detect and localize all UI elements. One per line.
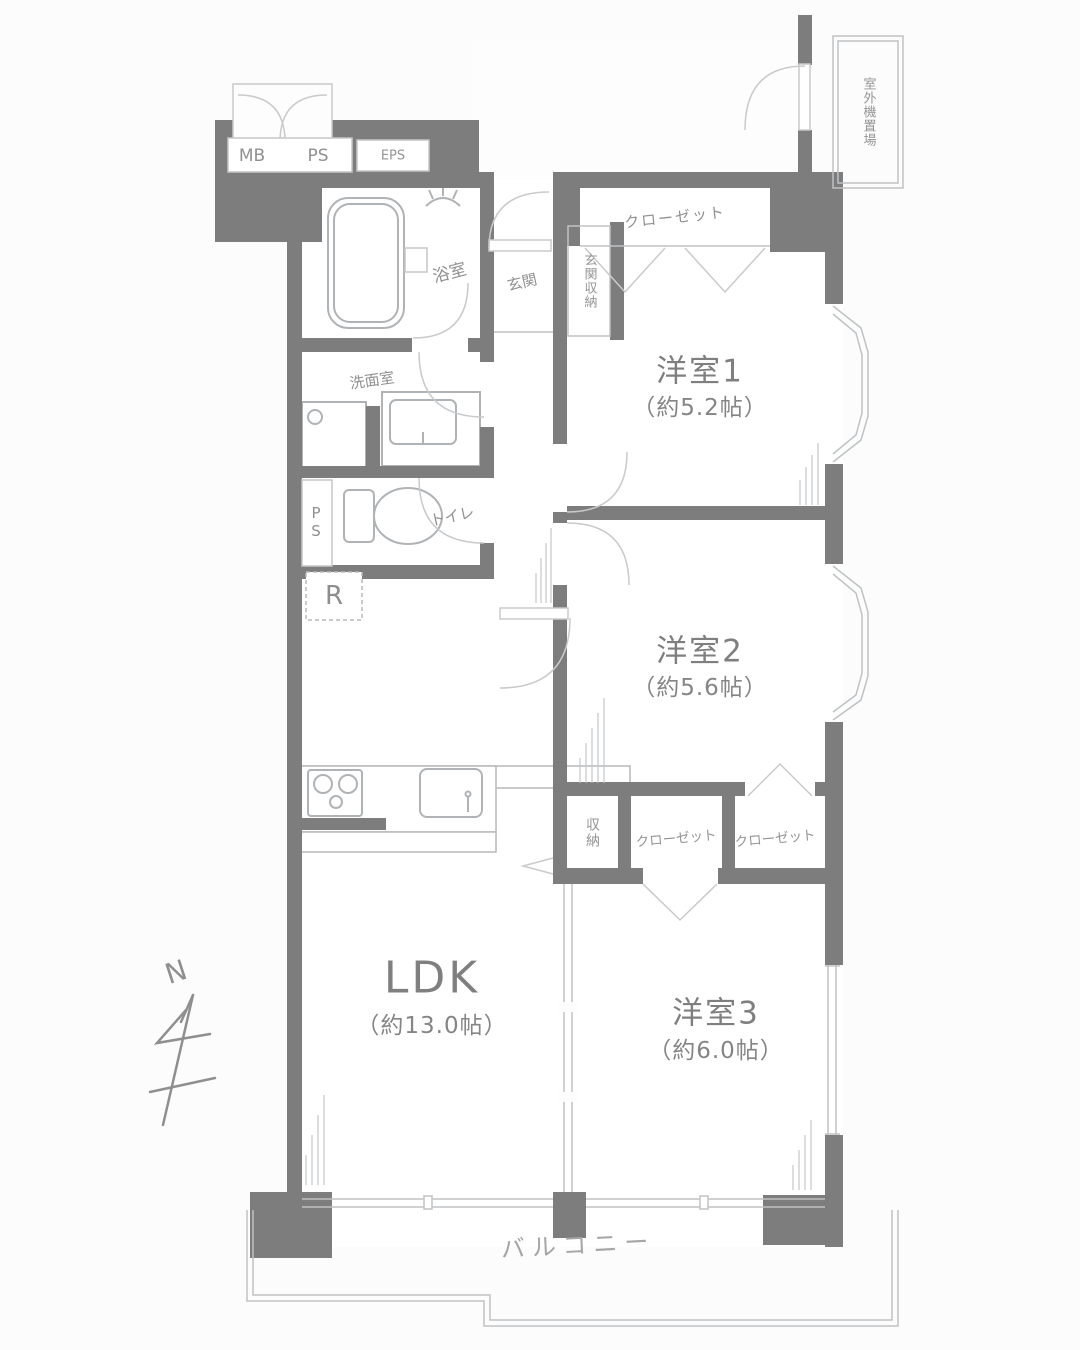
washing-machine-icon: [302, 402, 366, 468]
label-room2: 洋室2: [656, 626, 744, 671]
label-genkan-storage: 玄関収納: [580, 253, 599, 309]
label-ps-shaft: PS: [307, 504, 325, 540]
vanity-sink-icon: [382, 392, 480, 466]
label-mb: MB: [239, 146, 265, 166]
label-room3: 洋室3: [672, 988, 760, 1033]
floorplan-page: MB PS EPS 浴室 玄関 玄関収納 クローゼット 洋室1 （約5.2帖） …: [0, 0, 1080, 1350]
label-room1-size: （約5.2帖）: [632, 388, 768, 422]
kitchen-sink-icon: [420, 769, 482, 817]
label-ps: PS: [307, 146, 328, 166]
label-eps: EPS: [381, 149, 405, 164]
label-ldk-size: （約13.0帖）: [356, 1006, 507, 1040]
label-ldk: LDK: [384, 953, 480, 1004]
floorplan-drawing: [0, 0, 1080, 1350]
label-room3-size: （約6.0帖）: [648, 1031, 784, 1065]
north-arrow-icon: [150, 995, 215, 1125]
label-storage: 収納: [582, 817, 602, 849]
label-refrigerator: R: [325, 581, 343, 611]
bathtub-icon: [328, 198, 404, 328]
label-outdoor-unit: 室外機置場: [859, 77, 878, 147]
stove-icon: [308, 770, 362, 816]
bath-niche: [405, 248, 427, 272]
label-room2-size: （約5.6帖）: [632, 668, 768, 702]
label-room1: 洋室1: [656, 346, 744, 391]
